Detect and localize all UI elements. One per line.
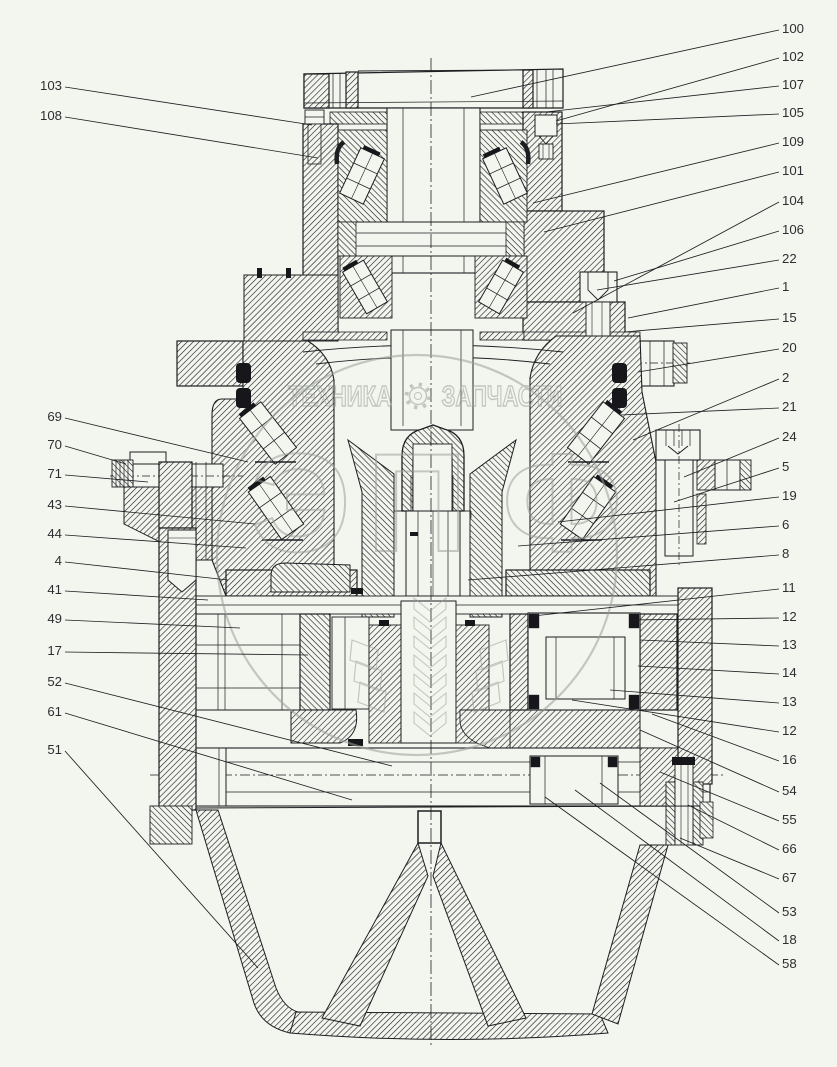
svg-text:6: 6 — [782, 517, 789, 532]
svg-text:21: 21 — [782, 399, 797, 414]
svg-text:61: 61 — [47, 704, 62, 719]
svg-text:П: П — [367, 424, 468, 581]
svg-text:16: 16 — [782, 752, 797, 767]
svg-text:4: 4 — [55, 553, 62, 568]
svg-text:1: 1 — [782, 279, 789, 294]
svg-text:70: 70 — [47, 437, 62, 452]
svg-text:108: 108 — [40, 108, 62, 123]
svg-text:49: 49 — [47, 611, 62, 626]
svg-text:2: 2 — [782, 370, 789, 385]
svg-text:54: 54 — [782, 783, 797, 798]
svg-text:102: 102 — [782, 49, 804, 64]
svg-text:12: 12 — [782, 723, 797, 738]
svg-text:12: 12 — [782, 609, 797, 624]
svg-text:67: 67 — [782, 870, 797, 885]
svg-text:19: 19 — [782, 488, 797, 503]
svg-text:53: 53 — [782, 904, 797, 919]
svg-text:71: 71 — [47, 466, 62, 481]
svg-text:17: 17 — [47, 643, 62, 658]
svg-text:24: 24 — [782, 429, 797, 444]
svg-text:ЗАПЧАСТИ: ЗАПЧАСТИ — [442, 381, 563, 413]
svg-text:69: 69 — [47, 409, 62, 424]
svg-text:51: 51 — [47, 742, 62, 757]
svg-text:55: 55 — [782, 812, 797, 827]
svg-text:5: 5 — [782, 459, 789, 474]
svg-text:20: 20 — [782, 340, 797, 355]
svg-text:109: 109 — [782, 134, 804, 149]
svg-text:ТЕХНИКА: ТЕХНИКА — [288, 381, 392, 413]
svg-text:103: 103 — [40, 78, 62, 93]
svg-text:105: 105 — [782, 105, 804, 120]
svg-text:100: 100 — [782, 21, 804, 36]
svg-text:18: 18 — [782, 932, 797, 947]
svg-text:14: 14 — [782, 665, 797, 680]
svg-text:104: 104 — [782, 193, 804, 208]
svg-text:101: 101 — [782, 163, 804, 178]
svg-text:Э: Э — [251, 424, 351, 581]
svg-text:66: 66 — [782, 841, 797, 856]
svg-text:11: 11 — [782, 580, 796, 595]
svg-text:44: 44 — [47, 526, 62, 541]
svg-text:106: 106 — [782, 222, 804, 237]
svg-text:13: 13 — [782, 694, 797, 709]
svg-text:52: 52 — [47, 674, 62, 689]
svg-text:15: 15 — [782, 310, 797, 325]
svg-text:8: 8 — [782, 546, 789, 561]
svg-text:58: 58 — [782, 956, 797, 971]
svg-text:43: 43 — [47, 497, 62, 512]
svg-text:41: 41 — [47, 582, 62, 597]
svg-text:22: 22 — [782, 251, 797, 266]
svg-text:Ф: Ф — [502, 424, 622, 581]
svg-text:13: 13 — [782, 637, 797, 652]
svg-text:107: 107 — [782, 77, 804, 92]
